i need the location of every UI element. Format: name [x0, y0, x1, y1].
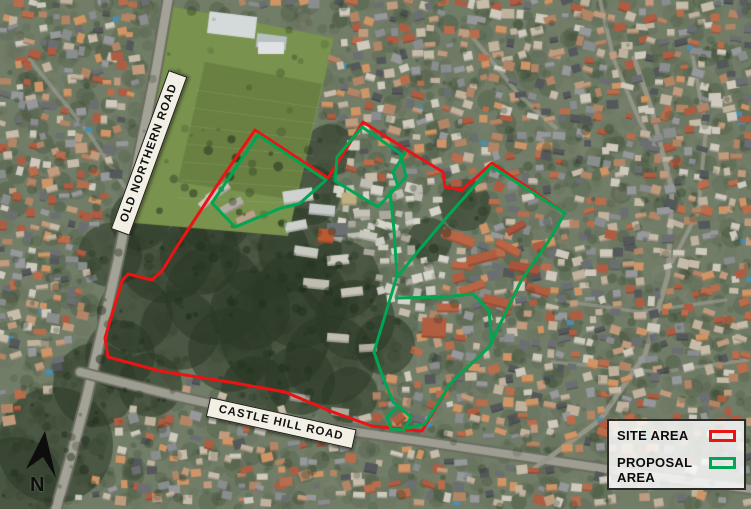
legend-item-site-area: SITE AREA — [617, 428, 736, 444]
proposal-area-boundary — [387, 406, 411, 430]
legend-label-proposal-area: PROPOSAL AREA — [617, 455, 699, 486]
site-area-swatch — [709, 430, 736, 442]
proposal-area-boundary — [374, 153, 405, 406]
legend-label-site-area: SITE AREA — [617, 428, 699, 444]
north-arrow-icon — [26, 431, 56, 478]
proposal-area-boundary — [397, 294, 492, 343]
north-compass-label: N — [30, 474, 44, 497]
proposal-area-boundary — [212, 135, 326, 227]
aerial-map-figure: OLD NORTHERN ROAD CASTLE HILL ROAD N SIT… — [0, 0, 751, 509]
map-legend: SITE AREA PROPOSAL AREA — [607, 419, 746, 490]
proposal-area-swatch — [709, 457, 736, 469]
legend-item-proposal-area: PROPOSAL AREA — [617, 455, 736, 486]
